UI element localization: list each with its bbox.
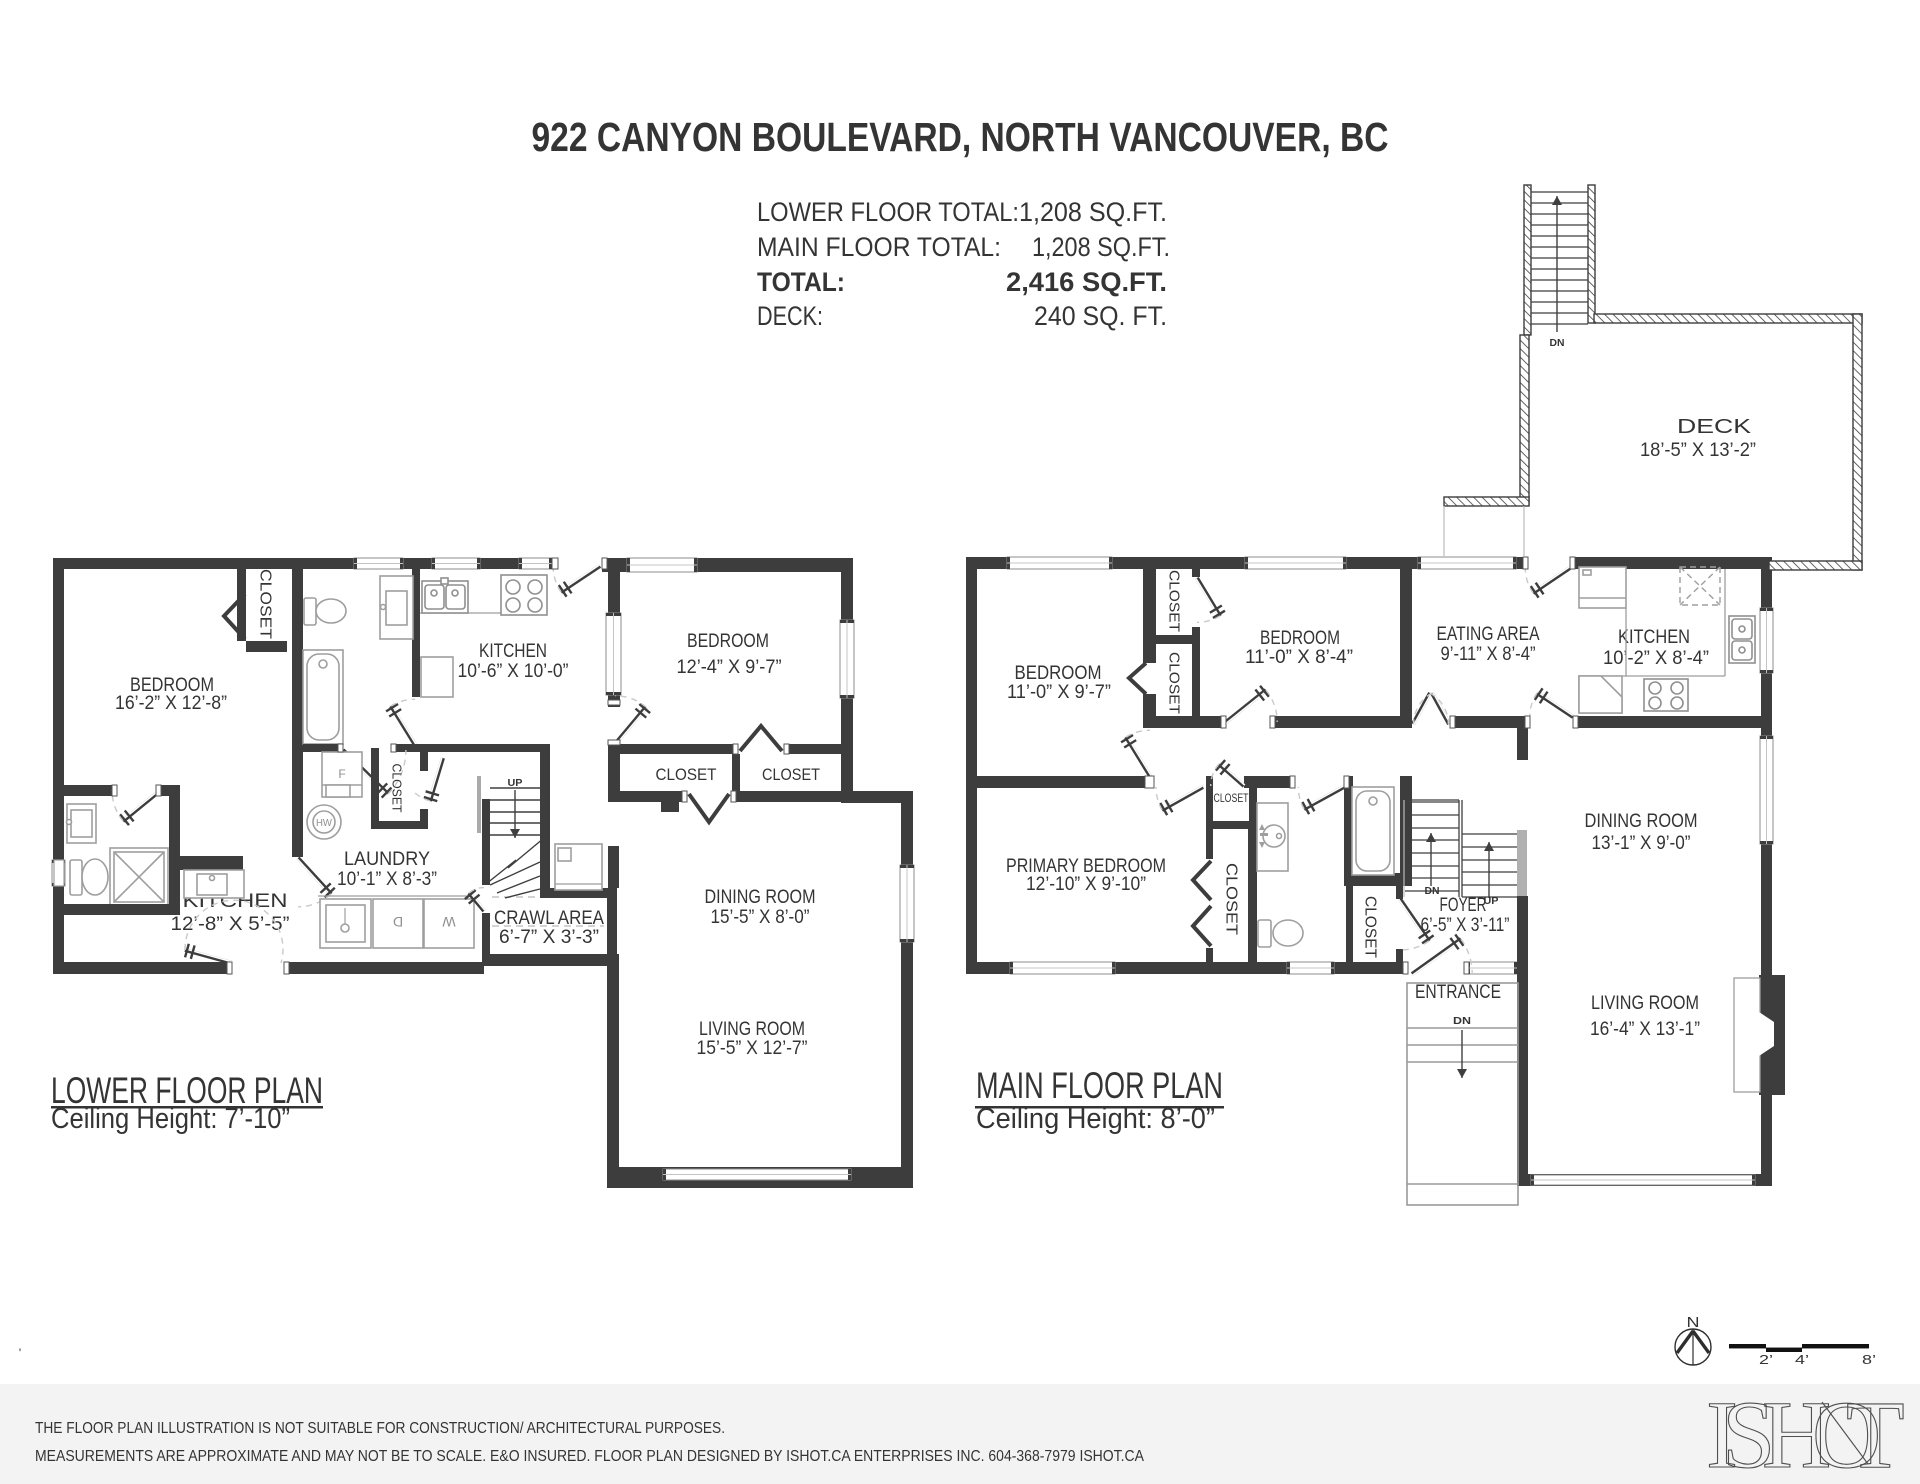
- svg-text:CLOSET: CLOSET: [1166, 570, 1183, 632]
- svg-text:DINING ROOM: DINING ROOM: [705, 887, 816, 908]
- svg-text:CLOSET: CLOSET: [1362, 896, 1379, 958]
- svg-text:4’: 4’: [1795, 1352, 1809, 1367]
- svg-text:KITCHEN: KITCHEN: [1618, 627, 1690, 648]
- svg-text:10’-1” X 8’-3”: 10’-1” X 8’-3”: [337, 869, 437, 890]
- svg-text:DINING ROOM: DINING ROOM: [1585, 811, 1698, 832]
- svg-text:18’-5” X 13’-2”: 18’-5” X 13’-2”: [1640, 440, 1756, 461]
- svg-text:MAIN FLOOR TOTAL:: MAIN FLOOR TOTAL:: [757, 232, 1001, 262]
- svg-text:10’-2” X 8’-4”: 10’-2” X 8’-4”: [1603, 648, 1709, 669]
- svg-text:D: D: [393, 914, 403, 930]
- svg-text:15’-5” X 8’-0”: 15’-5” X 8’-0”: [711, 907, 810, 928]
- svg-text:HW: HW: [316, 818, 333, 829]
- svg-text:N: N: [1687, 1314, 1700, 1331]
- svg-text:MAIN FLOOR PLAN: MAIN FLOOR PLAN: [976, 1065, 1223, 1106]
- svg-text:T: T: [1846, 1381, 1905, 1484]
- svg-text:9’-11” X 8’-4”: 9’-11” X 8’-4”: [1441, 644, 1536, 665]
- svg-text:UP: UP: [508, 778, 523, 789]
- svg-text:LIVING ROOM: LIVING ROOM: [699, 1019, 805, 1040]
- svg-text:CLOSET: CLOSET: [1166, 652, 1183, 714]
- svg-text:KITCHEN: KITCHEN: [479, 641, 547, 662]
- svg-text:CLOSET: CLOSET: [1214, 791, 1249, 805]
- svg-text:12’-10” X 9’-10”: 12’-10” X 9’-10”: [1026, 874, 1146, 895]
- svg-text:': ': [19, 1346, 21, 1360]
- svg-text:BEDROOM: BEDROOM: [687, 631, 769, 652]
- svg-text:16’-4” X 13’-1”: 16’-4” X 13’-1”: [1590, 1019, 1700, 1040]
- svg-text:1,208 SQ.FT.: 1,208 SQ.FT.: [1032, 232, 1170, 262]
- svg-text:6’-5” X 3’-11”: 6’-5” X 3’-11”: [1421, 915, 1510, 936]
- svg-text:16’-2” X 12’-8”: 16’-2” X 12’-8”: [115, 693, 227, 714]
- svg-text:CLOSET: CLOSET: [390, 764, 405, 813]
- svg-text:11’-0” X 9’-7”: 11’-0” X 9’-7”: [1007, 682, 1111, 703]
- svg-text:1,208 SQ.FT.: 1,208 SQ.FT.: [1019, 197, 1167, 227]
- svg-text:12’-8” X 5’-5”: 12’-8” X 5’-5”: [171, 914, 290, 935]
- svg-text:THE FLOOR PLAN ILLUSTRATION IS: THE FLOOR PLAN ILLUSTRATION IS NOT SUITA…: [35, 1420, 725, 1437]
- svg-text:CLOSET: CLOSET: [257, 569, 274, 639]
- svg-text:2’: 2’: [1759, 1352, 1773, 1367]
- svg-text:12’-4” X 9’-7”: 12’-4” X 9’-7”: [677, 657, 782, 678]
- svg-text:W: W: [442, 914, 456, 930]
- svg-text:10’-6” X 10’-0”: 10’-6” X 10’-0”: [458, 661, 569, 682]
- svg-text:BEDROOM: BEDROOM: [1260, 628, 1340, 649]
- svg-text:TOTAL:: TOTAL:: [757, 267, 845, 297]
- svg-text:EATING AREA: EATING AREA: [1437, 624, 1540, 645]
- svg-text:MEASUREMENTS ARE APPROXIMATE A: MEASUREMENTS ARE APPROXIMATE AND MAY NOT…: [35, 1448, 1144, 1465]
- svg-text:11’-0” X 8’-4”: 11’-0” X 8’-4”: [1245, 647, 1353, 668]
- svg-text:LAUNDRY: LAUNDRY: [344, 849, 430, 870]
- svg-text:DN: DN: [1550, 338, 1565, 349]
- svg-text:LOWER FLOOR TOTAL:: LOWER FLOOR TOTAL:: [757, 197, 1019, 227]
- svg-text:DN: DN: [1425, 886, 1440, 897]
- svg-text:UP: UP: [1484, 896, 1499, 907]
- svg-text:13’-1” X 9’-0”: 13’-1” X 9’-0”: [1592, 833, 1691, 854]
- svg-text:ENTRANCE: ENTRANCE: [1415, 982, 1501, 1003]
- svg-text:8’: 8’: [1862, 1352, 1876, 1367]
- svg-text:LIVING ROOM: LIVING ROOM: [1591, 993, 1699, 1014]
- svg-text:Ceiling Height: 8’-0”: Ceiling Height: 8’-0”: [976, 1103, 1215, 1135]
- svg-text:F: F: [338, 767, 345, 781]
- svg-text:CLOSET: CLOSET: [762, 765, 820, 784]
- svg-text:922 CANYON BOULEVARD, NORTH VA: 922 CANYON BOULEVARD, NORTH VANCOUVER, B…: [532, 114, 1389, 160]
- svg-text:FOYER: FOYER: [1440, 895, 1487, 916]
- svg-text:CLOSET: CLOSET: [656, 765, 717, 784]
- svg-text:240 SQ. FT.: 240 SQ. FT.: [1034, 301, 1167, 331]
- svg-text:2,416 SQ.FT.: 2,416 SQ.FT.: [1006, 267, 1167, 297]
- svg-text:DECK:: DECK:: [757, 301, 823, 331]
- svg-text:15’-5” X 12’-7”: 15’-5” X 12’-7”: [697, 1038, 808, 1059]
- svg-text:6’-7” X 3’-3”: 6’-7” X 3’-3”: [499, 927, 599, 948]
- svg-text:DN: DN: [1453, 1016, 1471, 1027]
- svg-text:BEDROOM: BEDROOM: [1015, 663, 1102, 684]
- svg-text:Ceiling Height: 7’-10”: Ceiling Height: 7’-10”: [51, 1103, 290, 1135]
- svg-text:DECK: DECK: [1677, 416, 1752, 438]
- svg-text:CLOSET: CLOSET: [1223, 863, 1240, 935]
